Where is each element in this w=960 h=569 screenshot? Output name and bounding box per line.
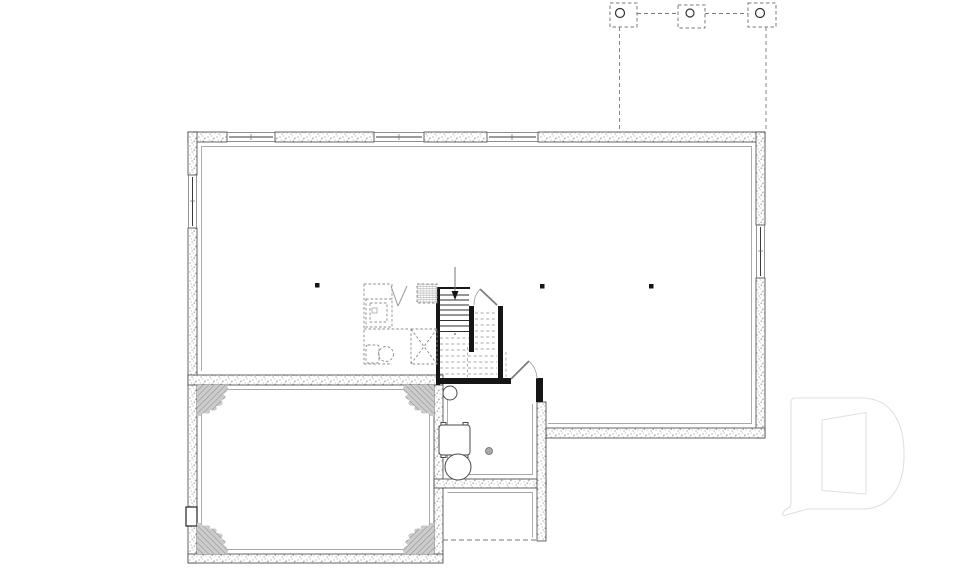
deck-above-outline xyxy=(610,3,776,131)
stair-direction-arrow xyxy=(452,267,459,335)
foundation-walls xyxy=(188,132,765,563)
water-heater xyxy=(445,454,471,480)
mechanical-room-door xyxy=(511,361,537,379)
mechanical-room xyxy=(439,386,493,480)
corner-hatch xyxy=(403,523,434,554)
window xyxy=(227,133,275,142)
column-dot xyxy=(540,284,545,289)
deck-post xyxy=(748,3,776,27)
column-dot xyxy=(649,284,654,289)
doors xyxy=(474,289,537,379)
future-door-swing xyxy=(391,286,407,306)
stair-core-walls xyxy=(436,287,543,402)
window xyxy=(374,133,424,142)
wall-inner-lines xyxy=(202,147,752,550)
floor-plan-drawing xyxy=(0,0,960,569)
future-bathroom xyxy=(364,284,437,364)
window xyxy=(757,225,765,278)
pressure-tank xyxy=(443,386,457,400)
corner-hatch xyxy=(197,523,228,554)
corner-hatch xyxy=(197,385,228,416)
deck-post xyxy=(678,5,705,28)
floor-drain xyxy=(486,448,493,455)
column-dot xyxy=(315,283,320,288)
stair-closet-door xyxy=(474,289,497,305)
basement-windows xyxy=(186,133,765,527)
vent-chase xyxy=(417,284,437,303)
d-monogram-logo xyxy=(783,398,904,515)
plan-sheet xyxy=(0,0,960,569)
vanity-sink xyxy=(366,299,392,327)
corner-hatches xyxy=(197,385,434,554)
stair-treads xyxy=(440,295,469,332)
window xyxy=(487,133,538,142)
future-shower xyxy=(411,329,437,364)
window xyxy=(189,175,197,228)
corner-hatch xyxy=(403,385,434,416)
deck-post xyxy=(610,3,637,27)
window xyxy=(186,507,197,526)
laundry-tub xyxy=(439,423,470,458)
toilet xyxy=(366,345,394,363)
